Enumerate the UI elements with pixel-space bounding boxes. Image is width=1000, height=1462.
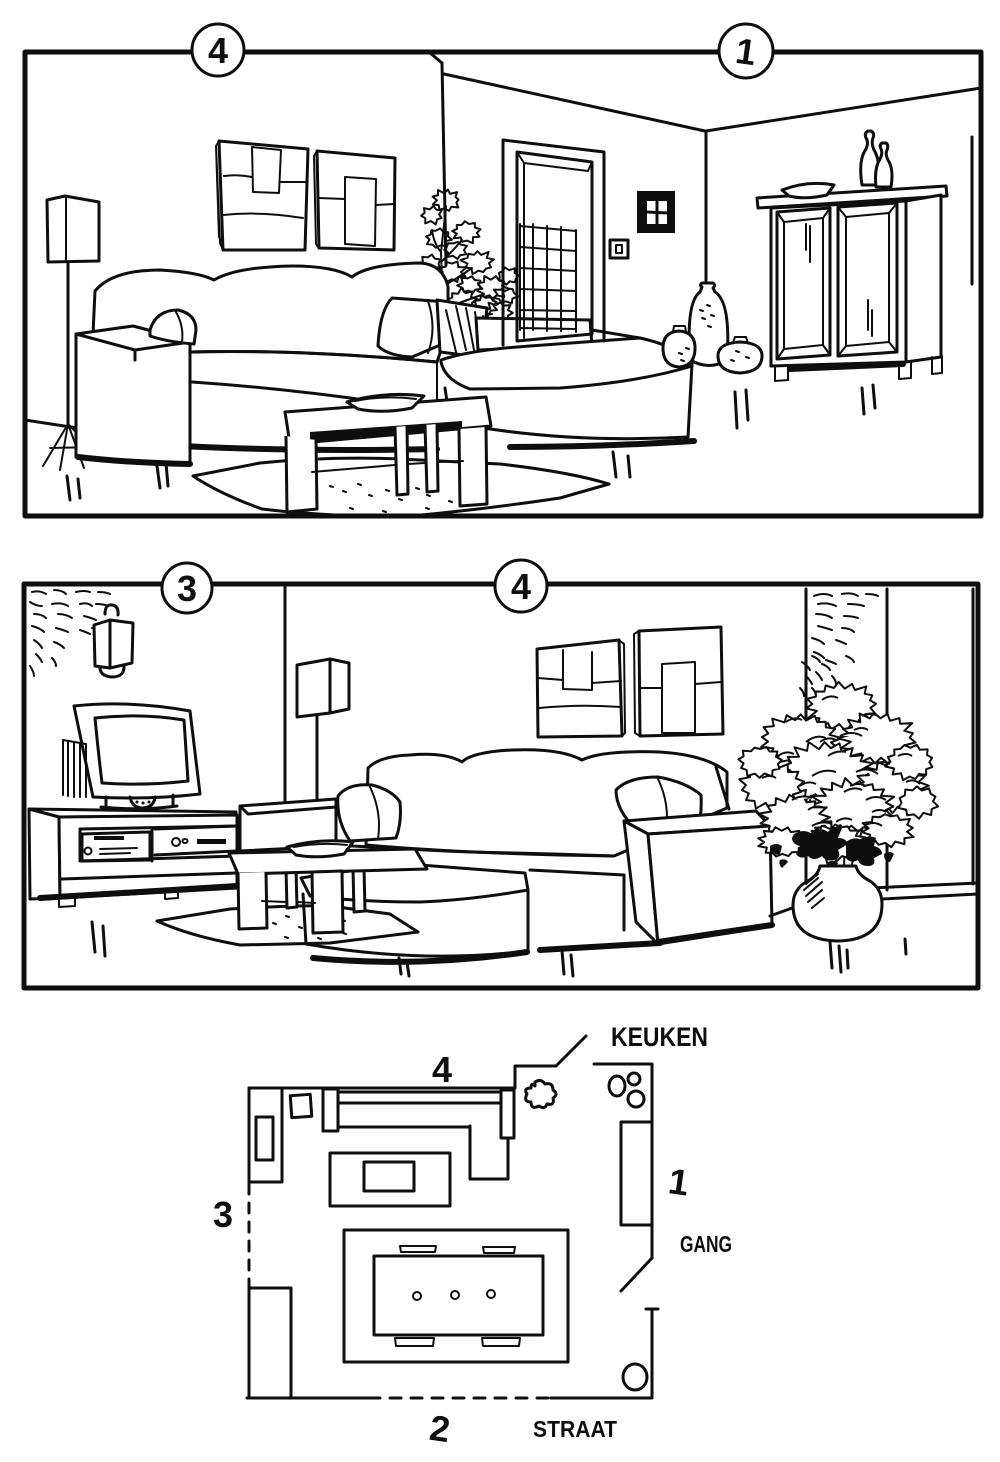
svg-text:3: 3 xyxy=(177,568,197,609)
svg-text:4: 4 xyxy=(511,566,531,607)
svg-text:KEUKEN: KEUKEN xyxy=(611,1022,708,1052)
svg-text:4: 4 xyxy=(208,30,228,71)
svg-text:4: 4 xyxy=(432,1049,452,1090)
svg-text:3: 3 xyxy=(213,1194,233,1235)
svg-text:STRAAT: STRAAT xyxy=(533,1416,617,1442)
svg-text:GANG: GANG xyxy=(680,1231,732,1257)
